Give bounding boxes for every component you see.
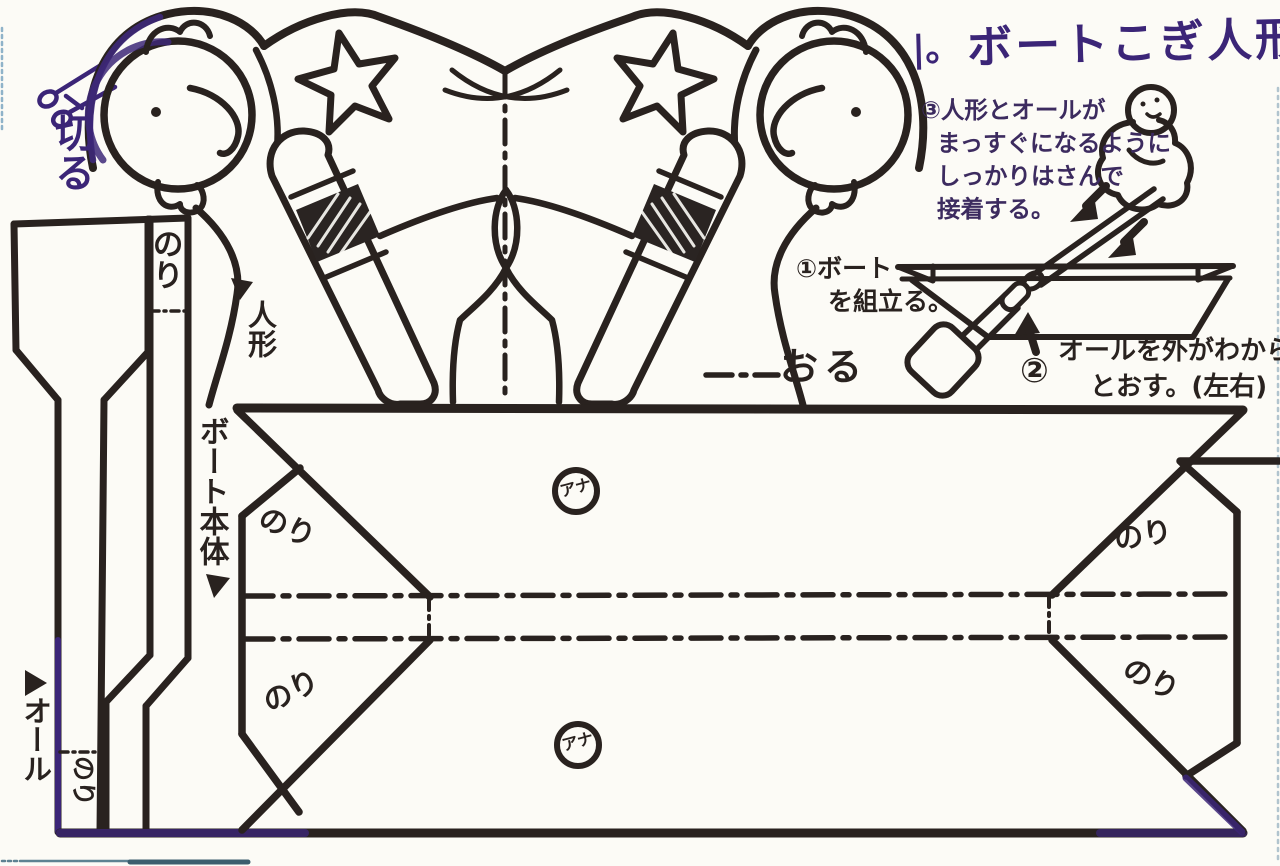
glue-strip-label: のり	[148, 228, 181, 290]
oar-label: オール	[20, 696, 50, 783]
step1-line1: ①ボート	[796, 256, 892, 282]
step2-line1: オールを外がわから	[1058, 338, 1280, 365]
boat-body-outline	[60, 408, 1279, 833]
step1-line2: を組立る。	[828, 289, 953, 315]
step3-line4: 接着する。	[921, 193, 1171, 226]
step2-badge: ②	[1020, 354, 1049, 390]
boat-body-label-pointer	[206, 574, 230, 598]
title-text: ボートこぎ人形	[967, 15, 1280, 71]
oar-label-pointer	[25, 670, 47, 696]
craft-pattern-sheet: |。 ボートこぎ人形 | ③人形とオールが まっすぐになるように しっかりはさん…	[0, 0, 1280, 866]
step3-line2: まっすぐになるように	[921, 127, 1171, 160]
step3-line1: ③人形とオールが	[921, 94, 1171, 127]
instruction-step3: ③人形とオールが まっすぐになるように しっかりはさんで 接着する。	[921, 94, 1171, 226]
glue-strip-outline	[106, 218, 188, 832]
step2-line2: とおす。(左右)	[1090, 374, 1267, 401]
sheet-title: |。 ボートこぎ人形 |	[911, 15, 1280, 73]
boat-body-label: ボート本体	[195, 416, 227, 566]
boat-fold-lines	[243, 594, 1234, 639]
cut-label: 切る	[50, 112, 92, 192]
oar-glue-label: のり	[70, 756, 96, 806]
title-open-mark: |。	[912, 30, 962, 69]
doll-label: 人形	[245, 300, 275, 358]
step3-line3: しっかりはさんで	[921, 160, 1171, 193]
fold-label: おる	[780, 348, 868, 388]
